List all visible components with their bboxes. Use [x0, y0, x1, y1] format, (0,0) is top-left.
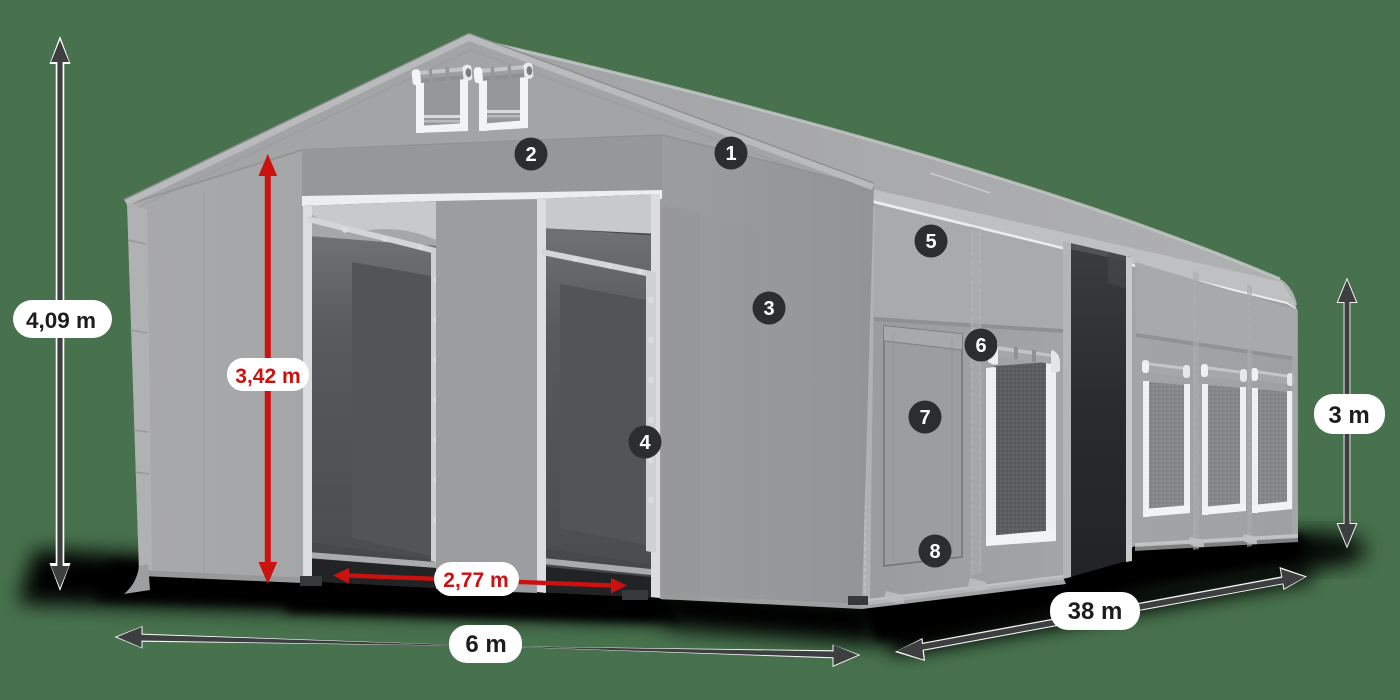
svg-text:5: 5 — [925, 231, 936, 253]
svg-text:4: 4 — [639, 432, 651, 454]
svg-text:1: 1 — [725, 143, 736, 165]
svg-text:6: 6 — [975, 335, 986, 357]
svg-text:38 m: 38 m — [1068, 598, 1123, 625]
svg-text:6 m: 6 m — [465, 631, 506, 658]
svg-text:2: 2 — [525, 144, 536, 166]
svg-text:7: 7 — [919, 407, 930, 429]
svg-text:8: 8 — [929, 541, 940, 563]
svg-text:3 m: 3 m — [1328, 402, 1369, 429]
svg-text:3: 3 — [763, 298, 774, 320]
svg-text:3,42 m: 3,42 m — [235, 365, 300, 388]
svg-text:4,09 m: 4,09 m — [26, 308, 96, 333]
svg-text:2,77 m: 2,77 m — [443, 569, 508, 592]
